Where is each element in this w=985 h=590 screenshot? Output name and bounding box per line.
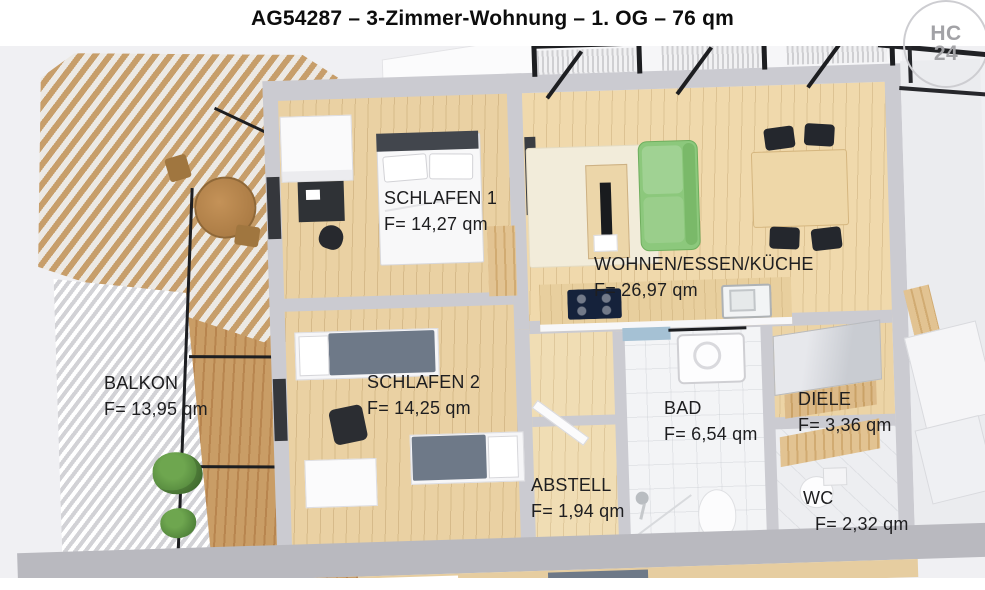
room-label-schlafen2: SCHLAFEN 2 F= 14,25 qm	[367, 370, 480, 421]
dining-chair	[810, 226, 842, 251]
desk-paper	[306, 190, 320, 200]
room-name: DIELE	[798, 387, 892, 413]
bed-headboard	[376, 131, 479, 152]
balcony-door	[266, 177, 281, 239]
bed-blanket	[412, 435, 487, 481]
desk	[304, 458, 377, 508]
room-area: F= 3,36 qm	[798, 413, 892, 439]
sideboard-deco	[593, 234, 618, 252]
room-name: SCHLAFEN 2	[367, 370, 480, 396]
window-mullion	[531, 47, 537, 77]
room-name: BALKON	[104, 371, 208, 397]
bed-blanket	[328, 330, 435, 375]
room-name: WC	[803, 486, 909, 512]
hc24-logo-top: HC	[930, 24, 961, 44]
room-label-schlafen1: SCHLAFEN 1 F= 14,27 qm	[384, 186, 497, 237]
dining-table	[751, 149, 849, 228]
bath-tile-strip	[622, 327, 670, 342]
room-label-wc: WC F= 2,32 qm	[803, 486, 909, 537]
pillow	[429, 153, 473, 179]
dining-chair	[804, 123, 835, 147]
room-label-abstell: ABSTELL F= 1,94 qm	[531, 473, 625, 524]
sofa-cushion	[642, 145, 683, 194]
room-area: F= 13,95 qm	[104, 397, 208, 423]
floorplan-page: AG54287 – 3-Zimmer-Wohnung – 1. OG – 76 …	[0, 0, 985, 590]
room-name: SCHLAFEN 1	[384, 186, 497, 212]
room-name: WOHNEN/ESSEN/KÜCHE	[594, 252, 814, 278]
room-name: BAD	[664, 396, 758, 422]
office-chair	[328, 404, 369, 446]
room-area: F= 2,32 qm	[815, 512, 909, 538]
pillow	[488, 436, 519, 479]
desk	[298, 181, 345, 222]
room-area: F= 6,54 qm	[664, 422, 758, 448]
room-label-balkon: BALKON F= 13,95 qm	[104, 371, 208, 422]
render-scene: SCHLAFEN 1 F= 14,27 qm WOHNEN/ESSEN/KÜCH…	[0, 46, 985, 578]
room-area: F= 14,25 qm	[367, 396, 480, 422]
wc-cistern	[823, 467, 848, 486]
window-glass	[537, 48, 638, 75]
room-label-wohnen: WOHNEN/ESSEN/KÜCHE F= 26,97 qm	[594, 252, 814, 303]
balcony-chair	[234, 224, 261, 247]
room-label-diele: DIELE F= 3,36 qm	[798, 387, 892, 438]
sofa-cushion	[643, 196, 684, 243]
window-mullion	[636, 46, 642, 74]
room-area: F= 26,97 qm	[594, 278, 814, 304]
dining-chair	[769, 226, 800, 249]
tv	[600, 182, 613, 236]
hc24-logo-bottom: 24	[934, 44, 958, 64]
page-title: AG54287 – 3-Zimmer-Wohnung – 1. OG – 76 …	[0, 7, 985, 31]
pillow	[298, 335, 329, 376]
pillow	[382, 153, 428, 183]
room-area: F= 1,94 qm	[531, 499, 625, 525]
balcony-door	[273, 379, 288, 441]
window-mullion	[761, 46, 767, 70]
hc24-logo: HC 24	[903, 0, 985, 88]
room-area: F= 14,27 qm	[384, 212, 497, 238]
dining-chair	[763, 125, 796, 151]
room-label-bad: BAD F= 6,54 qm	[664, 396, 758, 447]
room-name: ABSTELL	[531, 473, 625, 499]
wardrobe	[280, 115, 354, 183]
window-glass	[661, 46, 767, 71]
window-mullion	[889, 46, 895, 66]
